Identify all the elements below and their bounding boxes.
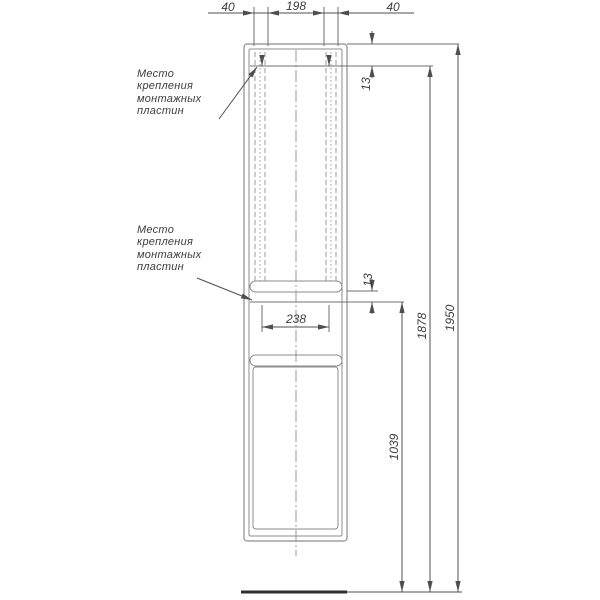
note-line: крепления [137,236,237,248]
note-line: пластин [137,105,237,117]
hidden-lines [255,50,336,556]
dim-top-right-value: 40 [386,0,400,14]
dim-height-upper-plate-value: 1878 [415,312,429,339]
note-line: пластин [137,261,237,273]
dim-height-lower-plate-value: 1039 [387,433,401,460]
dim-offset-top-value: 13 [359,77,373,91]
dim-offset-middle-value: 13 [361,273,375,287]
technical-drawing-canvas: 40 198 40 13 13 238 1039 1878 1950 Место… [0,0,600,600]
mounting-plates-note-upper: Место крепления монтажных пластин [137,68,237,118]
dim-span-lower-value: 238 [285,312,306,326]
note-line: крепления [137,80,237,92]
dimension-texts: 40 198 40 13 13 238 1039 1878 1950 [221,0,457,460]
reference-lines [250,7,459,332]
dim-top-center-value: 198 [286,0,306,13]
note-line: монтажных [137,93,237,105]
dim-top-left-value: 40 [221,0,235,14]
cabinet-installation-drawing: 40 198 40 13 13 238 1039 1878 1950 [0,0,600,600]
note-line: Место [137,224,237,236]
note-line: Место [137,68,237,80]
dim-height-total-value: 1950 [443,304,457,331]
mounting-plates-note-lower: Место крепления монтажных пластин [137,224,237,274]
note-line: монтажных [137,249,237,261]
